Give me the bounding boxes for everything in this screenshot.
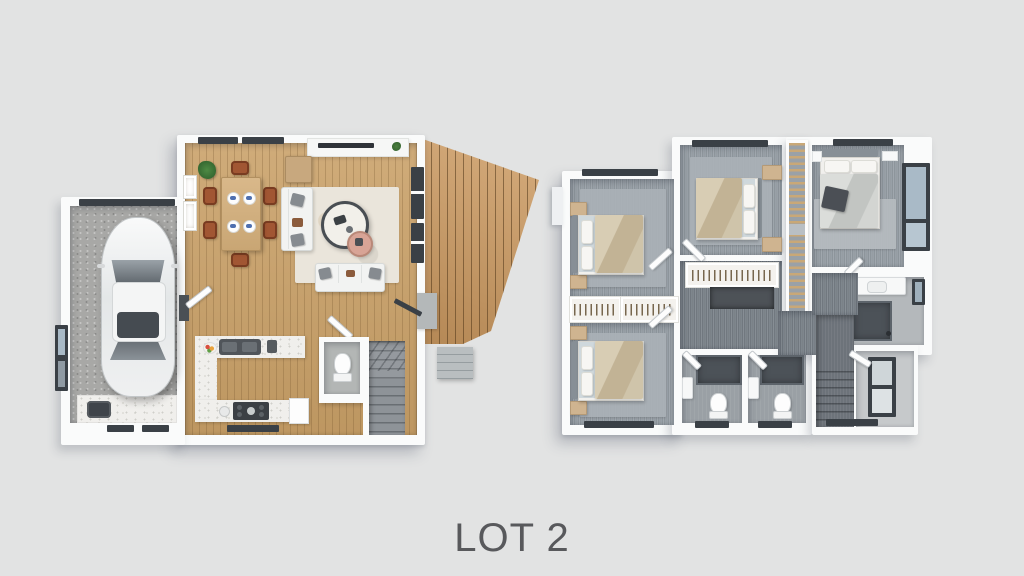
dining-chair — [231, 253, 249, 267]
wall-art-2 — [183, 201, 197, 231]
staircase — [369, 341, 405, 435]
utility-sink — [87, 401, 111, 418]
bathroom1-window — [695, 421, 729, 428]
bed-pillow — [743, 210, 755, 234]
dining-window-2 — [242, 137, 284, 144]
toilet-tank — [333, 373, 352, 382]
floating-shelf — [882, 151, 898, 161]
ground-floor-plan — [55, 125, 537, 460]
toilet-tank — [773, 411, 792, 419]
bed — [696, 178, 758, 240]
tv — [318, 143, 374, 148]
shower-drain — [886, 331, 891, 336]
nightstand — [762, 237, 782, 252]
table-decor — [333, 214, 347, 225]
bed-duvet — [696, 178, 742, 238]
toilet — [334, 353, 351, 375]
throw-blanket — [821, 186, 849, 213]
bedroom2-window — [582, 169, 658, 176]
dining-table — [221, 177, 261, 251]
stair-winders — [369, 341, 405, 371]
bathroom1-shower — [696, 355, 742, 385]
nightstand — [762, 165, 782, 180]
bed-pillow — [581, 246, 593, 270]
dining-chair — [231, 161, 249, 175]
bathroom2-window — [758, 421, 792, 428]
dining-chair — [263, 187, 277, 205]
stove — [233, 402, 269, 420]
corner-plant — [198, 161, 216, 179]
floating-shelf — [812, 151, 822, 162]
side-cabinet — [285, 156, 312, 183]
stair-void — [710, 287, 774, 309]
deck-steps — [437, 347, 473, 379]
bed-duvet — [595, 341, 643, 399]
bathroom1-vanity — [682, 377, 693, 399]
sofa-pillow — [290, 193, 306, 208]
bed — [578, 215, 644, 275]
stair-landing — [789, 224, 805, 235]
master-bed — [820, 157, 880, 229]
bed-pillow — [581, 372, 593, 396]
nightstand — [570, 202, 587, 216]
media-console — [307, 138, 409, 157]
master-top-window — [833, 139, 893, 146]
pot — [219, 406, 230, 417]
place-setting — [227, 192, 240, 205]
nightstand — [570, 326, 587, 340]
car-rear-window — [110, 342, 166, 360]
sofa-left — [281, 187, 313, 251]
ensuite-vanity — [852, 277, 906, 295]
small-appliance — [267, 340, 277, 353]
console-plant — [392, 142, 401, 151]
bed-pillow — [581, 220, 593, 244]
nightstand — [570, 401, 587, 415]
kitchen-counter-top — [195, 336, 305, 358]
hallway-floor — [778, 311, 818, 355]
table-decor — [346, 226, 353, 233]
dining-chair — [263, 221, 277, 239]
place-setting — [227, 220, 240, 233]
kitchen-bottom-window — [227, 425, 279, 432]
landing-window — [868, 357, 896, 417]
fruit-bowl — [203, 342, 217, 354]
upper-floor-plan — [550, 125, 970, 445]
wall-art-1 — [183, 175, 197, 199]
dining-window-1 — [198, 137, 238, 144]
sofa-pillow — [290, 233, 305, 247]
chimney-stub — [552, 187, 563, 225]
garage-bottom-window-1 — [107, 425, 134, 432]
car — [101, 217, 175, 397]
bathroom2-shower — [760, 355, 804, 385]
car-mirror-right — [171, 264, 179, 268]
garage-door — [79, 199, 175, 206]
floor-plan-sheet: LOT 2 — [0, 0, 1024, 576]
powder-room — [319, 337, 367, 403]
place-setting — [243, 220, 256, 233]
bed-pillow — [824, 160, 850, 173]
stairs-down — [816, 315, 854, 427]
nightstand — [570, 275, 587, 289]
closet-hangers — [570, 297, 621, 322]
garage-bottom-window-2 — [142, 425, 169, 432]
kitchen-sink — [219, 339, 261, 355]
stairwell — [786, 140, 808, 318]
vanity-sink — [867, 281, 887, 293]
ensuite-shower — [852, 301, 892, 341]
dining-chair — [203, 221, 217, 239]
garage-utility-counter — [77, 395, 177, 423]
car-windshield — [108, 260, 168, 284]
bedroom3-window — [584, 421, 654, 428]
place-setting — [243, 192, 256, 205]
master-side-window — [902, 163, 930, 251]
sofa-pillow — [318, 267, 332, 280]
table-decor — [355, 238, 363, 246]
bed-pillow — [743, 184, 755, 208]
deck-slider-upper — [411, 167, 424, 219]
side-table — [347, 231, 373, 257]
bathroom2-vanity — [748, 377, 759, 399]
bed-pillow — [851, 160, 877, 173]
hallway-floor — [812, 273, 858, 315]
bed-headboard — [820, 149, 878, 157]
sofa-throw — [292, 218, 303, 227]
car-mirror-left — [97, 264, 105, 268]
landing-bottom-window — [826, 419, 878, 426]
bedroom1-window — [692, 140, 768, 147]
hall-closet-hangers — [686, 263, 778, 287]
car-sunroof — [117, 312, 159, 338]
garage-side-window — [55, 325, 68, 391]
ensuite-window — [912, 279, 925, 305]
toilet-tank — [709, 411, 728, 419]
bed-pillow — [581, 346, 593, 370]
dining-chair — [203, 187, 217, 205]
bed-duvet — [595, 215, 643, 273]
sofa-bottom — [315, 263, 385, 292]
sofa-pillow — [368, 267, 382, 280]
bed — [578, 341, 644, 401]
deck-slider-lower — [411, 223, 424, 263]
fridge — [289, 398, 309, 424]
sofa-throw — [346, 270, 355, 277]
lot-label: LOT 2 — [0, 516, 1024, 561]
